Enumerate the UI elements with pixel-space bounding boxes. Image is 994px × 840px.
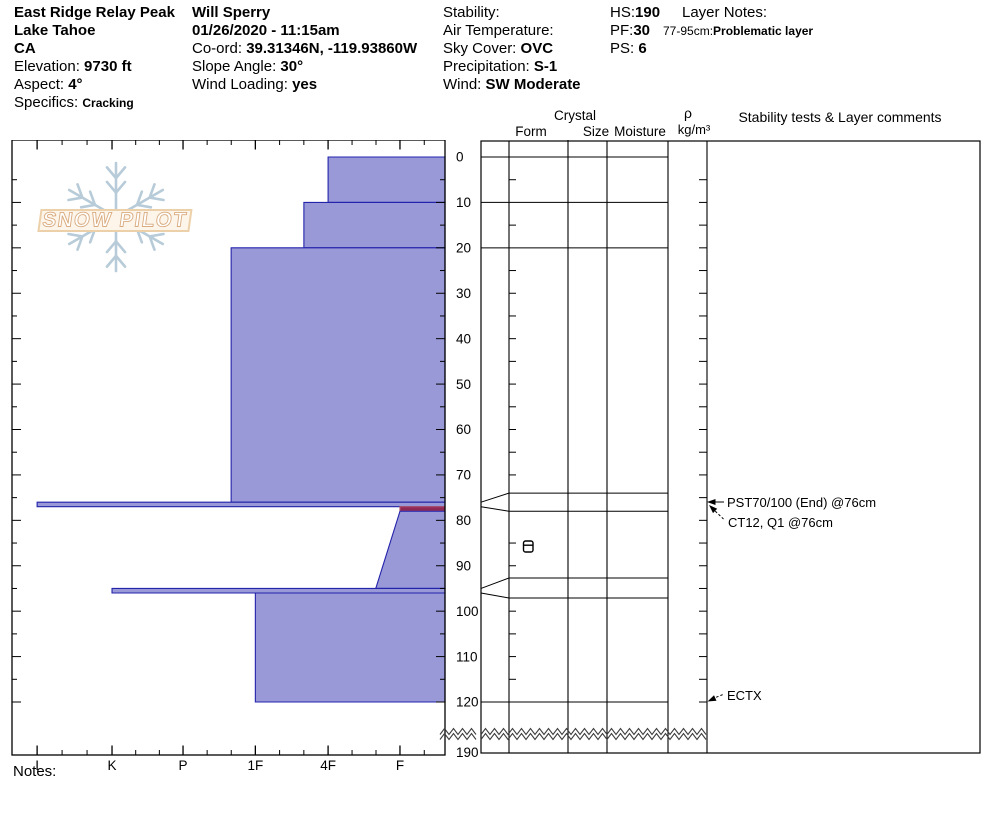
conditions-line: Precipitation: S-1 xyxy=(443,58,581,76)
location-line: Elevation: 9730 ft xyxy=(14,58,175,76)
layer-notes-block: Layer Notes: 77-95cm:Problematic layer xyxy=(663,4,813,40)
total-depth-label: 190 xyxy=(456,745,479,760)
layer-notes-list: 77-95cm:Problematic layer xyxy=(663,22,813,40)
observer-line: Will Sperry xyxy=(192,4,417,22)
depth-label: 60 xyxy=(456,422,471,437)
depth-axis-break xyxy=(481,734,706,740)
thin-layer-wedge xyxy=(481,578,509,588)
depth-label: 100 xyxy=(456,604,479,619)
header-observer-block: Will Sperry01/26/2020 - 11:15amCo-ord: 3… xyxy=(192,4,417,94)
hardness-axis-label: 1F xyxy=(247,758,263,773)
observer-line: Co-ord: 39.31346N, -119.93860W xyxy=(192,40,417,58)
form-header: Form xyxy=(496,124,566,139)
measurements-line: HS:190 xyxy=(610,4,660,22)
layer-bar-problematic xyxy=(400,507,445,512)
density-symbol-header: ρ xyxy=(668,105,708,121)
observer-line: Slope Angle: 30° xyxy=(192,58,417,76)
conditions-line: Wind: SW Moderate xyxy=(443,76,581,94)
depth-label: 90 xyxy=(456,558,471,573)
location-line: Specifics: Cracking xyxy=(14,94,175,112)
depth-label: 50 xyxy=(456,377,471,392)
layer-bar xyxy=(376,511,445,588)
stability-test-annotation: PST70/100 (End) @76cm xyxy=(727,495,876,510)
observer-line: 01/26/2020 - 11:15am xyxy=(192,22,417,40)
depth-label: 80 xyxy=(456,513,471,528)
header-conditions-block: Stability:Air Temperature:Sky Cover: OVC… xyxy=(443,4,581,94)
grain-form-crust-icon xyxy=(524,541,534,552)
layer-bar xyxy=(304,202,445,247)
depth-label: 10 xyxy=(456,195,471,210)
layer-bar xyxy=(231,248,445,502)
measurements-line: PF:30 xyxy=(610,22,660,40)
header-location-block: East Ridge Relay PeakLake TahoeCAElevati… xyxy=(14,4,175,112)
snow-profile-figure: SNOW PILOTIKP1F4FF0102030405060708090100… xyxy=(0,140,994,800)
crystal-header: Crystal xyxy=(540,108,610,123)
snowpilot-banner: SNOW PILOT xyxy=(38,209,191,232)
measurements-line: PS: 6 xyxy=(610,40,660,58)
layer-bar xyxy=(112,588,445,593)
depth-label: 110 xyxy=(456,649,478,664)
hardness-axis-label: 4F xyxy=(320,758,336,773)
depth-label: 0 xyxy=(456,150,464,165)
density-units-header: kg/m³ xyxy=(664,122,724,137)
layer-bar xyxy=(255,593,445,702)
thin-layer-wedge xyxy=(481,593,509,598)
header-measurements-block: HS:190PF:30PS: 6 xyxy=(610,4,660,58)
conditions-line: Sky Cover: OVC xyxy=(443,40,581,58)
layer-bar xyxy=(328,157,445,202)
stability-comments-header: Stability tests & Layer comments xyxy=(718,109,962,125)
thin-layer-wedge xyxy=(481,493,509,502)
layer-table-frame xyxy=(481,141,980,753)
hardness-axis-label: F xyxy=(396,758,404,773)
depth-label: 70 xyxy=(456,468,471,483)
observer-line: Wind Loading: yes xyxy=(192,76,417,94)
hardness-axis-label: P xyxy=(179,758,188,773)
annotation-arrowhead xyxy=(707,499,716,505)
location-line: CA xyxy=(14,40,175,58)
stability-test-annotation: CT12, Q1 @76cm xyxy=(728,515,833,530)
notes-label: Notes: xyxy=(13,763,56,780)
annotation-arrowhead xyxy=(706,695,716,704)
depth-label: 30 xyxy=(456,286,471,301)
snowpilot-profile-page: { "header": { "columns": [ { "name": "lo… xyxy=(0,0,994,840)
location-line: East Ridge Relay Peak xyxy=(14,4,175,22)
hardness-axis-label: K xyxy=(108,758,117,773)
depth-label: 20 xyxy=(456,241,471,256)
layer-bar xyxy=(37,502,445,507)
location-line: Lake Tahoe xyxy=(14,22,175,40)
stability-test-annotation: ECTX xyxy=(727,688,762,703)
location-line: Aspect: 4° xyxy=(14,76,175,94)
thin-layer-wedge xyxy=(481,507,509,512)
conditions-line: Stability: xyxy=(443,4,581,22)
logo-text: SNOW PILOT xyxy=(41,209,189,232)
conditions-line: Air Temperature: xyxy=(443,22,581,40)
depth-label: 120 xyxy=(456,695,479,710)
depth-label: 40 xyxy=(456,331,471,346)
layer-notes-title: Layer Notes: xyxy=(663,4,813,22)
